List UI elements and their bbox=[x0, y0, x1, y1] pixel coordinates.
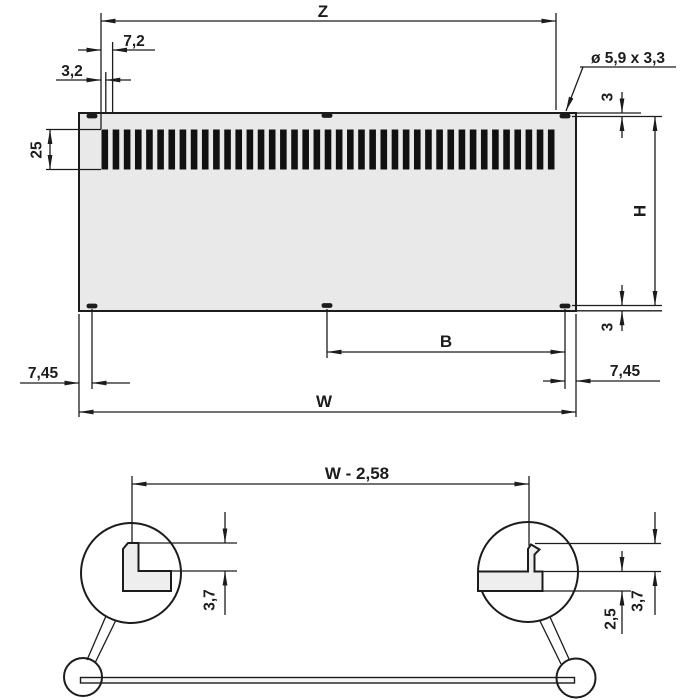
mounting-hole bbox=[87, 304, 98, 309]
dim-slot-width: 3,2 bbox=[56, 63, 131, 113]
vent-slot bbox=[102, 130, 109, 170]
dim-label-tab-span: W - 2,58 bbox=[325, 464, 389, 483]
detail-leader bbox=[87, 616, 106, 660]
mounting-hole bbox=[322, 303, 333, 308]
mounting-hole bbox=[560, 304, 571, 309]
edge-view bbox=[64, 658, 596, 698]
dim-hole-offset-bottom: 3 bbox=[576, 285, 662, 331]
vent-slot bbox=[157, 130, 164, 170]
detail-leader bbox=[540, 621, 561, 664]
dim-height: H bbox=[572, 117, 662, 306]
vent-slot bbox=[436, 130, 443, 170]
detail-leader bbox=[95, 620, 116, 663]
vent-slot bbox=[403, 130, 410, 170]
vent-slot bbox=[213, 130, 220, 170]
dim-label-slot-width: 3,2 bbox=[61, 63, 83, 80]
vent-slot bbox=[269, 130, 276, 170]
dim-label-z: Z bbox=[318, 2, 328, 21]
hole-callout: ø 5,9 x 3,3 bbox=[566, 50, 676, 111]
vent-slot bbox=[191, 130, 198, 170]
vent-slot bbox=[224, 130, 231, 170]
dim-label-slot-pitch: 7,2 bbox=[123, 33, 145, 50]
dim-label-edge-offset-left: 7,45 bbox=[28, 365, 59, 382]
dim-label-tab-height-right: 3,7 bbox=[630, 590, 647, 612]
vent-slot bbox=[180, 130, 187, 170]
vent-slot bbox=[392, 130, 399, 170]
vent-slot bbox=[314, 130, 321, 170]
vent-slot bbox=[235, 130, 242, 170]
vent-slot bbox=[124, 130, 131, 170]
vent-slot bbox=[503, 130, 510, 170]
vent-slot bbox=[280, 130, 287, 170]
dim-label-hole-offset-bottom: 3 bbox=[600, 322, 617, 331]
mounting-hole bbox=[560, 114, 571, 119]
vent-slot bbox=[526, 130, 533, 170]
vent-slot bbox=[347, 130, 354, 170]
mounting-hole bbox=[87, 114, 98, 119]
dim-z: Z bbox=[101, 2, 556, 129]
dim-label-height: H bbox=[631, 205, 650, 217]
vent-slot bbox=[325, 130, 332, 170]
dim-edge-offset-left: 7,45 bbox=[20, 309, 130, 417]
dim-label-hole-callout: ø 5,9 x 3,3 bbox=[591, 50, 665, 67]
corner-profile-right bbox=[478, 545, 543, 592]
vent-slot bbox=[425, 130, 432, 170]
mounting-hole bbox=[322, 113, 333, 118]
detail-circle-right: 3,7 2,5 bbox=[478, 512, 661, 664]
vent-slot bbox=[135, 130, 142, 170]
dim-label-width: W bbox=[316, 392, 333, 411]
vent-slot bbox=[470, 130, 477, 170]
vent-slot bbox=[537, 130, 544, 170]
vent-slot bbox=[202, 130, 209, 170]
dim-tab-span: W - 2,58 bbox=[132, 464, 529, 546]
dim-slot-pitch: 7,2 bbox=[78, 33, 155, 113]
vent-slot bbox=[381, 130, 388, 170]
vent-slot bbox=[336, 130, 343, 170]
dim-label-panel-thickness: 2,5 bbox=[603, 608, 620, 630]
vent-slot bbox=[514, 130, 521, 170]
dim-label-hole-offset-top: 3 bbox=[600, 92, 617, 101]
vent-slot bbox=[258, 130, 265, 170]
dim-hole-span: B bbox=[327, 309, 565, 358]
detail-circle-left: 3,7 bbox=[81, 512, 237, 663]
vent-slot bbox=[481, 130, 488, 170]
dim-label-edge-offset-right: 7,45 bbox=[610, 363, 641, 380]
dim-label-tab-height-left: 3,7 bbox=[202, 589, 219, 611]
vent-slot bbox=[447, 130, 454, 170]
detail-leader bbox=[550, 617, 569, 659]
vent-slots bbox=[102, 130, 555, 170]
dim-hole-offset-top: 3 bbox=[572, 92, 662, 138]
vent-slot bbox=[459, 130, 466, 170]
panel-edge-bar bbox=[81, 678, 575, 684]
vent-slot bbox=[358, 130, 365, 170]
dim-label-hole-span: B bbox=[440, 332, 452, 351]
vent-slot bbox=[302, 130, 309, 170]
dim-label-slot-height: 25 bbox=[29, 141, 46, 159]
dim-width: W bbox=[79, 392, 576, 412]
leader-line bbox=[566, 67, 583, 111]
vent-slot bbox=[414, 130, 421, 170]
vent-slot bbox=[113, 130, 120, 170]
vent-slot bbox=[291, 130, 298, 170]
technical-drawing: Z 7,2 3,2 25 ø 5,9 x 3,3 bbox=[0, 0, 700, 700]
corner-profile-left bbox=[123, 543, 171, 591]
vent-slot bbox=[492, 130, 499, 170]
vent-slot bbox=[369, 130, 376, 170]
vent-slot bbox=[247, 130, 254, 170]
vent-slot bbox=[548, 130, 555, 170]
drawing-canvas: Z 7,2 3,2 25 ø 5,9 x 3,3 bbox=[0, 0, 700, 700]
vent-slot bbox=[168, 130, 175, 170]
front-view: Z 7,2 3,2 25 ø 5,9 x 3,3 bbox=[20, 2, 676, 417]
detail-view: W - 2,58 3,7 3,7 2,5 bbox=[64, 464, 661, 698]
vent-slot bbox=[146, 130, 153, 170]
